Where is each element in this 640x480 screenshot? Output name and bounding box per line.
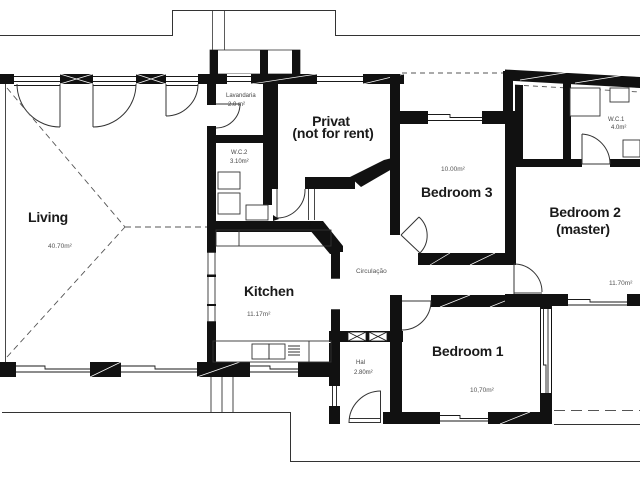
svg-text:3.10m²: 3.10m² <box>230 159 249 165</box>
svg-text:Lavandaria: Lavandaria <box>226 93 256 99</box>
svg-text:2.80m²: 2.80m² <box>354 370 373 376</box>
svg-text:2.0 m²: 2.0 m² <box>228 102 245 108</box>
svg-text:11.70m²: 11.70m² <box>609 280 633 287</box>
svg-text:(master): (master) <box>556 221 610 237</box>
svg-text:10.00m²: 10.00m² <box>441 166 466 173</box>
svg-text:4.0m²: 4.0m² <box>611 125 626 131</box>
svg-text:Kitchen: Kitchen <box>244 283 294 299</box>
svg-text:10,70m²: 10,70m² <box>470 387 495 394</box>
svg-text:Hal: Hal <box>356 360 365 366</box>
svg-text:Circulação: Circulação <box>356 268 387 275</box>
svg-text:W.C.1: W.C.1 <box>608 117 625 123</box>
svg-text:Bedroom 1: Bedroom 1 <box>432 343 504 359</box>
svg-text:11.17m²: 11.17m² <box>247 311 271 318</box>
svg-text:W.C.2: W.C.2 <box>231 150 248 156</box>
svg-text:Bedroom 3: Bedroom 3 <box>421 184 493 200</box>
svg-text:Bedroom 2: Bedroom 2 <box>549 204 621 220</box>
svg-text:40.70m²: 40.70m² <box>48 243 73 250</box>
svg-text:(not for rent): (not for rent) <box>292 125 373 141</box>
svg-text:Living: Living <box>28 209 68 225</box>
